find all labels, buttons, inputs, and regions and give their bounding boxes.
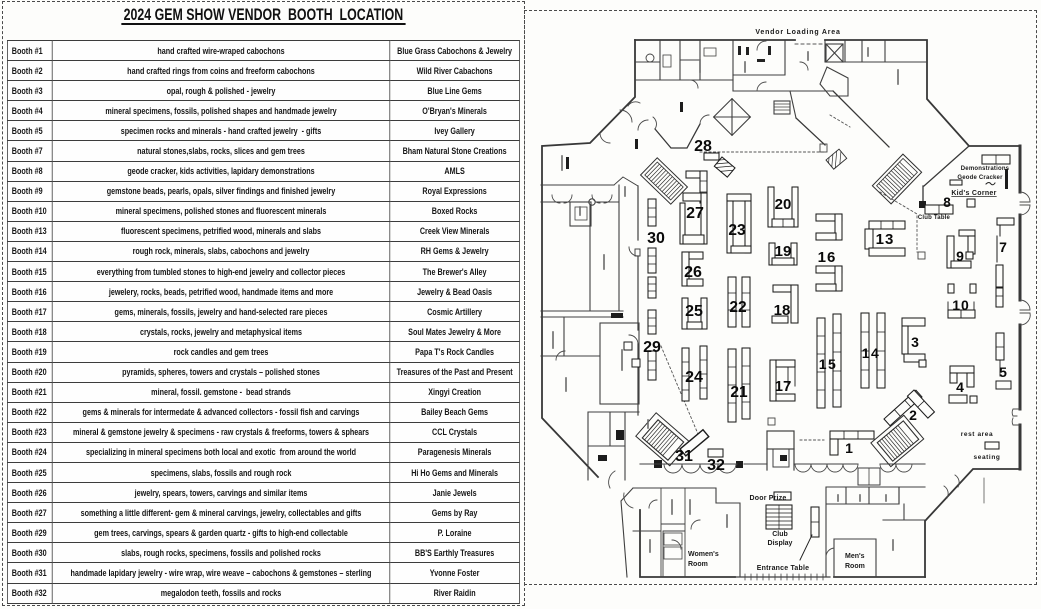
svg-text:Room: Room bbox=[845, 563, 865, 570]
svg-text:14: 14 bbox=[862, 345, 881, 361]
svg-text:16: 16 bbox=[818, 249, 837, 266]
svg-text:Display: Display bbox=[768, 540, 793, 547]
svg-text:15: 15 bbox=[819, 356, 838, 372]
svg-text:13: 13 bbox=[876, 231, 895, 248]
svg-text:9: 9 bbox=[956, 248, 964, 264]
svg-text:3: 3 bbox=[911, 334, 919, 350]
svg-text:19: 19 bbox=[775, 243, 792, 260]
svg-text:24: 24 bbox=[685, 369, 703, 386]
svg-text:Club: Club bbox=[772, 531, 788, 538]
svg-text:30: 30 bbox=[647, 230, 665, 247]
svg-text:2: 2 bbox=[909, 407, 917, 423]
svg-text:28: 28 bbox=[694, 138, 712, 155]
svg-text:Door Prize: Door Prize bbox=[749, 495, 786, 502]
svg-text:7: 7 bbox=[999, 239, 1007, 255]
svg-text:Vendor Loading Area: Vendor Loading Area bbox=[755, 29, 840, 36]
svg-text:Entrance Table: Entrance Table bbox=[757, 565, 809, 572]
svg-text:Women's: Women's bbox=[688, 551, 719, 558]
svg-text:5: 5 bbox=[999, 364, 1007, 380]
svg-text:23: 23 bbox=[728, 222, 746, 239]
svg-text:18: 18 bbox=[774, 302, 791, 319]
svg-text:rest area: rest area bbox=[961, 431, 994, 438]
svg-text:21: 21 bbox=[730, 384, 748, 401]
svg-text:Geode Cracker: Geode Cracker bbox=[957, 175, 1003, 181]
svg-text:27: 27 bbox=[686, 205, 704, 222]
svg-text:29: 29 bbox=[643, 339, 661, 356]
svg-text:25: 25 bbox=[685, 303, 703, 320]
svg-text:17: 17 bbox=[775, 378, 792, 395]
svg-text:seating: seating bbox=[974, 454, 1001, 461]
svg-text:8: 8 bbox=[943, 195, 951, 210]
svg-text:Men's: Men's bbox=[845, 553, 865, 560]
svg-text:Demonstrations: Demonstrations bbox=[961, 166, 1010, 172]
svg-text:32: 32 bbox=[707, 457, 725, 474]
svg-text:10: 10 bbox=[952, 297, 970, 313]
svg-text:Club Table: Club Table bbox=[918, 215, 951, 221]
svg-text:Kid's Corner: Kid's Corner bbox=[951, 190, 996, 197]
svg-text:20: 20 bbox=[775, 196, 792, 213]
svg-text:22: 22 bbox=[729, 299, 746, 316]
svg-text:31: 31 bbox=[675, 448, 693, 465]
svg-text:4: 4 bbox=[956, 379, 964, 395]
svg-text:26: 26 bbox=[684, 264, 702, 281]
svg-text:1: 1 bbox=[845, 440, 853, 456]
svg-text:Room: Room bbox=[688, 561, 708, 568]
